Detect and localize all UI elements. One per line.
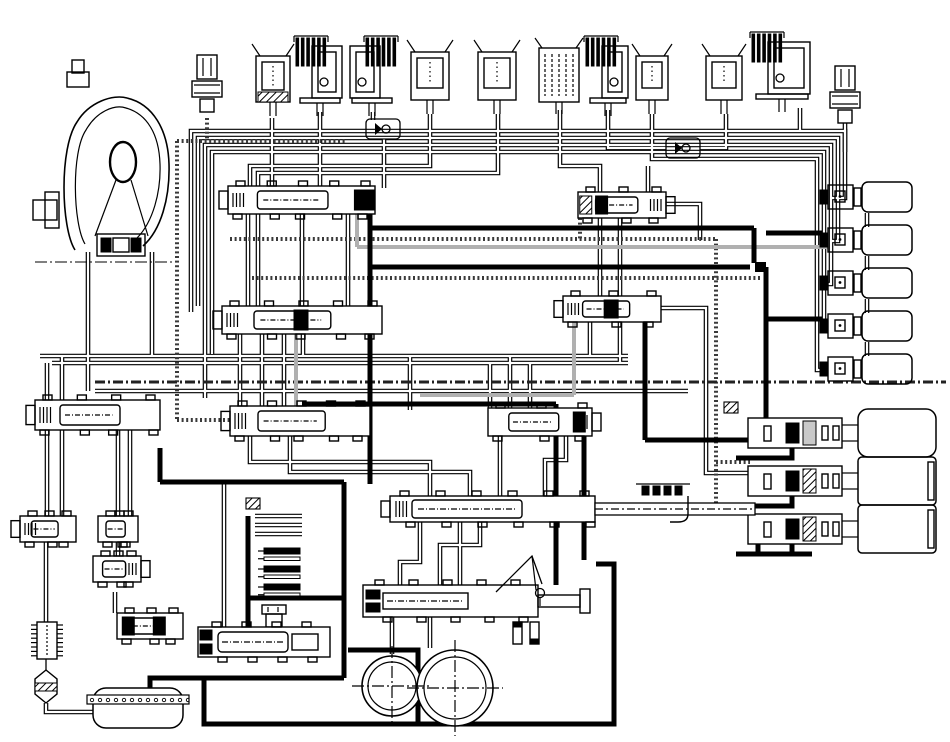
shift-valve-2: [213, 301, 382, 339]
hydraulic-circuit-diagram: [0, 0, 950, 742]
check-ball-valve-1: [11, 511, 76, 547]
control-valve-1: [578, 187, 675, 223]
exhaust-port-1: [246, 498, 260, 509]
solenoid-relay-valve: [117, 608, 183, 644]
shift-valve-4: [488, 403, 601, 441]
relief-valve: [26, 395, 160, 435]
bypass-valve: [93, 551, 150, 587]
check-ball-valve-2: [98, 511, 138, 547]
shift-valve-3: [221, 401, 370, 441]
control-valve-2: [554, 291, 661, 327]
line-jumper: [755, 262, 766, 272]
shift-valve-1: [219, 181, 375, 219]
oil-pan-strainer: [87, 688, 189, 728]
transmission-hydraulic-schematic: [0, 0, 950, 742]
exhaust-port-2: [724, 402, 738, 413]
